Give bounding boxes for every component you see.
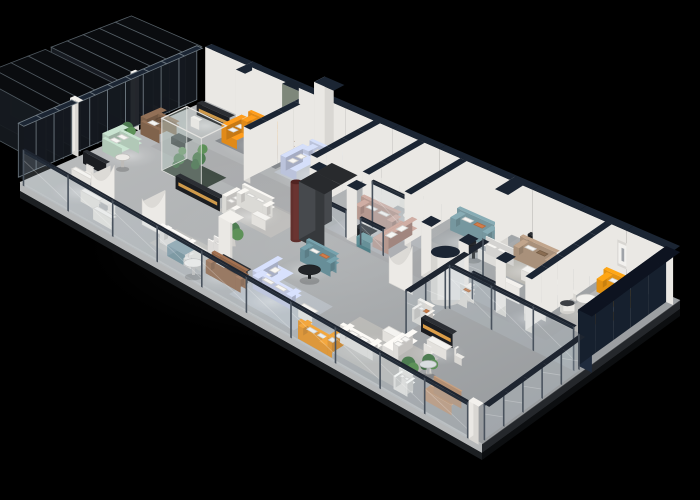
showroom-3d-render: [0, 0, 700, 500]
saucer-chair: [560, 300, 574, 314]
scene-canvas: [0, 0, 700, 500]
